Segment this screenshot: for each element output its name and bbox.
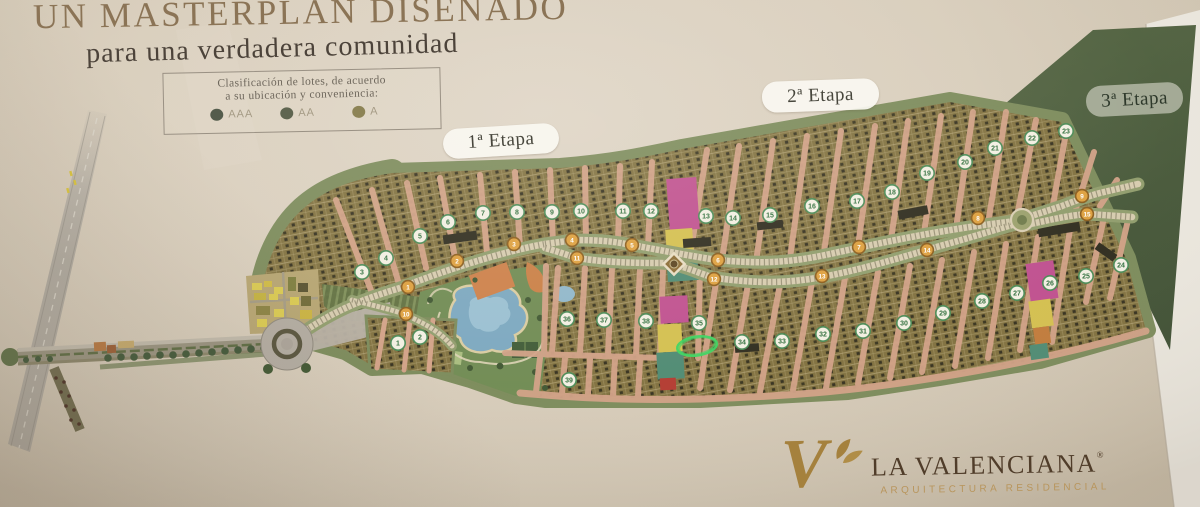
legend-color-dot [210,109,223,121]
masterplan-poster: 1234567891011121314151617181920212223242… [0,0,1200,507]
legend-item-aaa: AAA [210,108,253,121]
legend-color-dot [280,107,293,119]
legend-color-dot [352,106,365,118]
legend-item-label: AA [298,107,315,119]
legend-heading: Clasificación de lotes, de acuerdo a su … [164,73,440,104]
logo-monogram: V [780,429,828,500]
stage-3-label: 3ª Etapa [1085,81,1183,117]
leaf-icon [830,437,865,468]
legend-item-label: AAA [228,108,253,121]
legend-item-label: A [370,105,379,117]
logo-name: LA VALENCIANA® [871,449,1104,483]
registered-mark: ® [1097,450,1104,460]
legend-items: AAAAAA [164,102,440,132]
logo-name-text: LA VALENCIANA [871,449,1097,482]
legend-item-aa: AA [280,107,315,120]
legend-item-a: A [352,105,379,118]
logo-tagline: ARQUITECTURA RESIDENCIAL [880,481,1110,496]
lot-classification-legend: Clasificación de lotes, de acuerdo a su … [162,67,441,135]
brand-logo: V LA VALENCIANA® ARQUITECTURA RESIDENCIA… [780,424,1141,507]
stage-2-label: 2ª Etapa [761,78,879,113]
